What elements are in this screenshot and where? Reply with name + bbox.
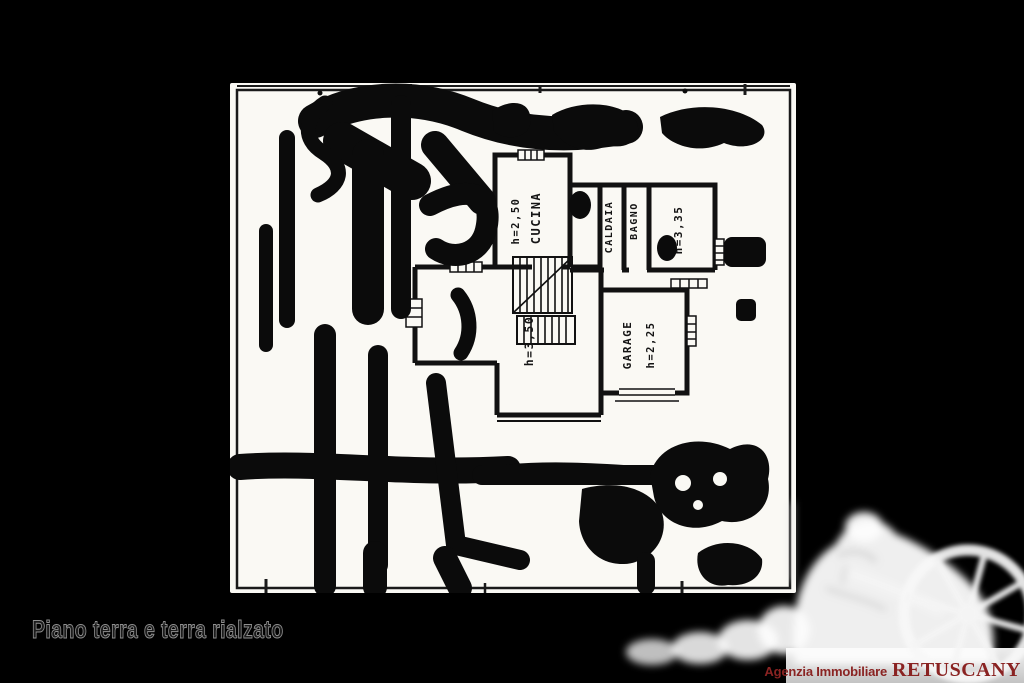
room-label-caldaia: CALDAIA — [604, 201, 615, 254]
agency-text-line: Agenzia Immobiliare RETUSCANY — [764, 659, 1021, 682]
room-label-cucina: CUCINA — [529, 192, 543, 244]
room-label-bagno: BAGNO — [629, 202, 640, 240]
brand-name: RETUSCANY — [892, 659, 1021, 682]
floorplan-drawing: h=2,50 CUCINA CALDAIA BAGNO h=3,35 h=3,5… — [230, 83, 796, 593]
room-label-garage: GARAGE — [621, 321, 634, 370]
scan-page: h=2,50 CUCINA CALDAIA BAGNO h=3,35 h=3,5… — [0, 0, 1024, 683]
room-label-h350: h=3,50 — [522, 316, 536, 367]
room-label-cucina-height: h=2,50 — [510, 198, 522, 245]
room-label-garage-height: h=2,25 — [645, 322, 657, 369]
floorplan-sheet: h=2,50 CUCINA CALDAIA BAGNO h=3,35 h=3,5… — [230, 83, 796, 593]
agency-name: Agenzia Immobiliare — [764, 664, 887, 679]
plan-caption: Piano terra e terra rialzato — [32, 616, 284, 645]
